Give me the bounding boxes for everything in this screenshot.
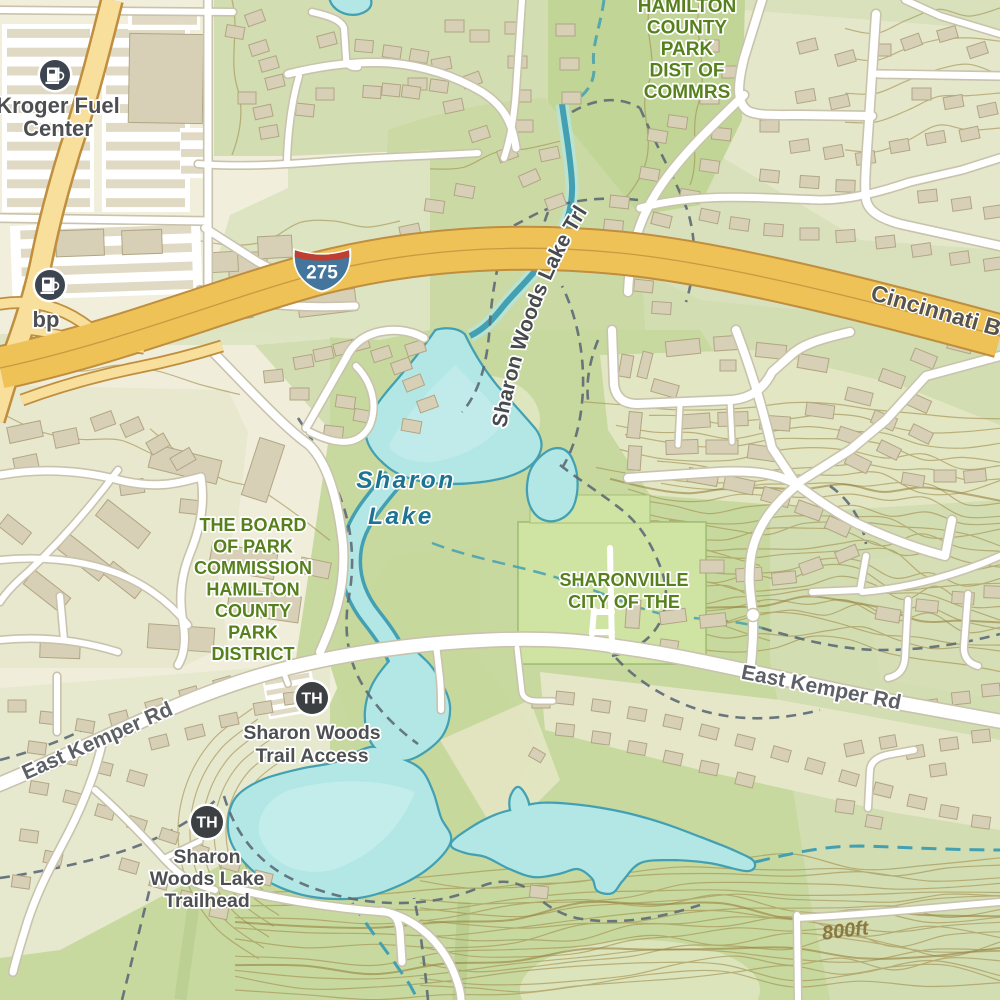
svg-text:COMMRS: COMMRS [644,82,731,103]
svg-text:HAMILTON: HAMILTON [206,580,299,600]
svg-text:CITY OF THE: CITY OF THE [568,592,680,612]
svg-text:HAMILTON: HAMILTON [638,0,737,17]
svg-text:TH: TH [301,691,322,708]
svg-text:OF PARK: OF PARK [213,537,293,557]
svg-text:Trailhead: Trailhead [164,890,250,912]
svg-text:Lake: Lake [368,503,434,530]
svg-text:DISTRICT: DISTRICT [212,644,295,664]
svg-text:bp: bp [33,307,60,332]
svg-text:Woods Lake: Woods Lake [150,868,265,890]
svg-text:DIST OF: DIST OF [650,61,725,82]
svg-text:Trail Access: Trail Access [255,745,368,767]
svg-text:TH: TH [196,815,217,832]
svg-text:275: 275 [306,263,338,284]
svg-text:Center: Center [23,116,93,141]
svg-text:Kroger Fuel: Kroger Fuel [0,93,120,118]
svg-text:PARK: PARK [228,623,278,643]
svg-text:Sharon Woods: Sharon Woods [243,722,380,744]
svg-text:Sharon: Sharon [173,846,240,868]
svg-text:COMMISSION: COMMISSION [194,558,312,578]
svg-text:THE BOARD: THE BOARD [200,515,307,535]
svg-text:SHARONVILLE: SHARONVILLE [559,570,688,590]
svg-text:COUNTY: COUNTY [215,601,291,621]
svg-text:Sharon: Sharon [356,467,455,494]
svg-text:PARK: PARK [661,39,714,60]
svg-text:COUNTY: COUNTY [647,18,728,39]
